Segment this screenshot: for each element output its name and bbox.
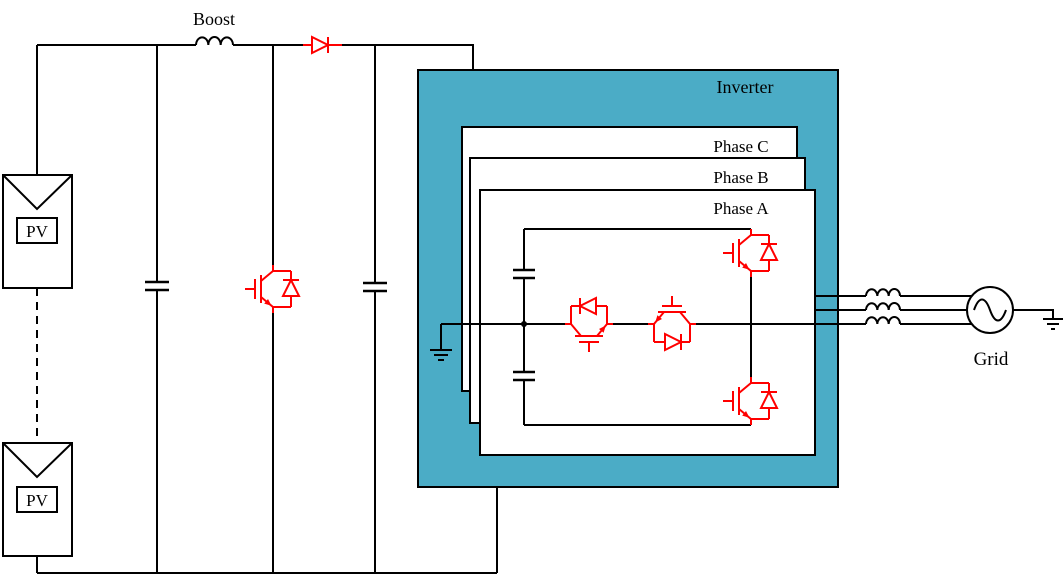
phase-panel-b-label: Phase B (713, 168, 768, 187)
line-inductor-2-icon (866, 303, 900, 310)
grid-source: Grid (967, 287, 1063, 370)
phase-panel-c-label: Phase C (713, 137, 768, 156)
grid-label: Grid (974, 349, 1009, 370)
line-inductor-1-icon (866, 289, 900, 296)
boost-label: Boost (193, 9, 235, 29)
phase-panel-a-label: Phase A (713, 199, 769, 218)
input-capacitor-icon (145, 282, 169, 290)
input-capacitor (145, 45, 169, 573)
pv-module-1: PV (3, 175, 72, 288)
dc-link-capacitor-icon (363, 283, 387, 291)
three-phase-output (815, 289, 976, 324)
dc-bus-top-wire (37, 45, 473, 70)
dc-link-capacitor (363, 45, 387, 573)
pv-module-2-label: PV (26, 491, 48, 510)
pv-module-2: PV (3, 443, 72, 556)
line-inductor-3-icon (866, 317, 900, 324)
midpoint-junction-dot (521, 321, 527, 327)
pv-inverter-circuit-diagram: PV PV Inverter Phase C Phase B (0, 0, 1063, 575)
boost-diode-icon (303, 37, 342, 53)
grid-ground-icon (1043, 319, 1063, 329)
circuit-diagram-svg: PV PV Inverter Phase C Phase B (0, 0, 1063, 575)
pv-module-1-chevron-icon (3, 175, 72, 209)
grid-ground-lead (1013, 310, 1053, 319)
boost-igbt-icon (245, 265, 299, 313)
pv-module-1-label: PV (26, 222, 48, 241)
boost-inductor-icon (196, 37, 233, 45)
pv-module-2-chevron-icon (3, 443, 72, 477)
boost-switch-branch (245, 45, 299, 573)
inverter-label: Inverter (717, 77, 774, 97)
